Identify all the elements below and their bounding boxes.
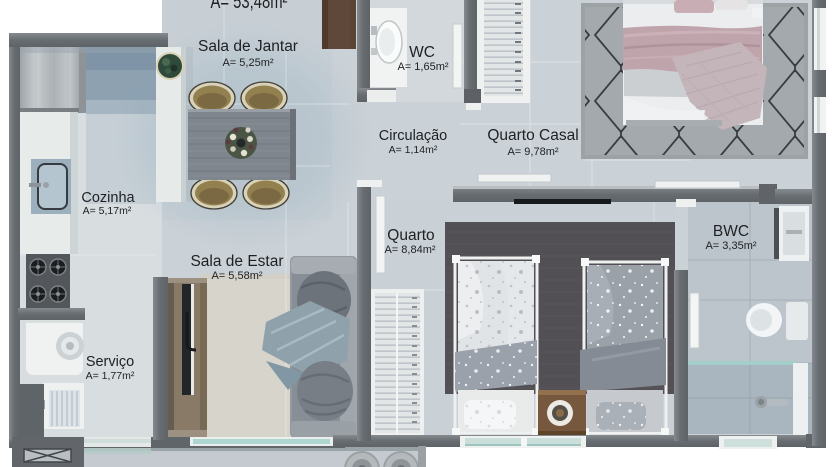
svg-text:A= 5,25m²: A= 5,25m² bbox=[222, 57, 273, 69]
svg-text:Circulação: Circulação bbox=[379, 128, 448, 144]
svg-text:A= 9,78m²: A= 9,78m² bbox=[507, 146, 558, 158]
svg-text:Sala de Estar: Sala de Estar bbox=[190, 253, 283, 270]
svg-text:A= 8,84m²: A= 8,84m² bbox=[384, 244, 435, 256]
svg-text:BWC: BWC bbox=[713, 223, 749, 240]
svg-text:A= 53,48m²: A= 53,48m² bbox=[211, 0, 288, 13]
svg-text:A= 1,14m²: A= 1,14m² bbox=[389, 144, 438, 156]
svg-text:A= 1,77m²: A= 1,77m² bbox=[86, 370, 135, 382]
svg-text:Quarto Casal: Quarto Casal bbox=[487, 127, 578, 144]
svg-text:WC: WC bbox=[409, 44, 435, 61]
svg-text:A= 3,35m²: A= 3,35m² bbox=[705, 240, 756, 252]
svg-text:A= 5,58m²: A= 5,58m² bbox=[211, 270, 262, 282]
svg-text:A= 5,17m²: A= 5,17m² bbox=[83, 205, 132, 217]
svg-text:Cozinha: Cozinha bbox=[81, 190, 135, 206]
svg-text:Quarto: Quarto bbox=[387, 227, 434, 244]
svg-text:A= 1,65m²: A= 1,65m² bbox=[397, 61, 448, 73]
svg-text:Sala de Jantar: Sala de Jantar bbox=[198, 38, 298, 55]
svg-text:Serviço: Serviço bbox=[86, 354, 134, 370]
